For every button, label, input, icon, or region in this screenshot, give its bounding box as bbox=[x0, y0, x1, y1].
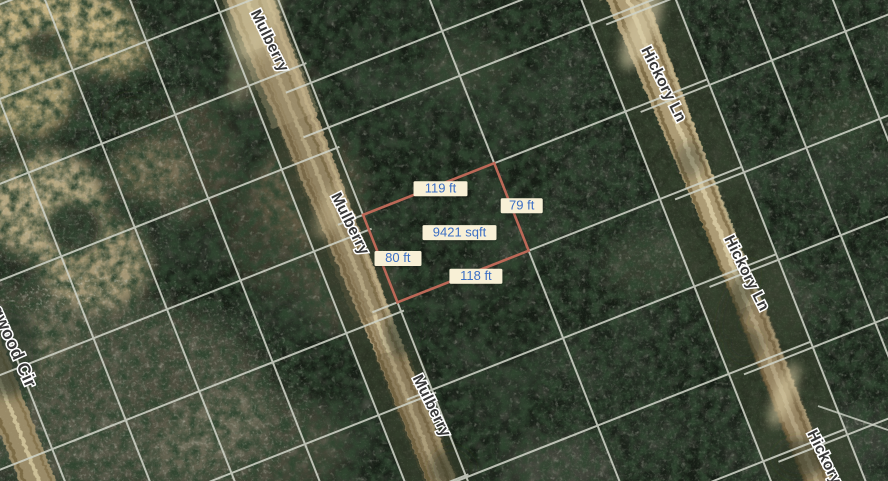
svg-text:79 ft: 79 ft bbox=[509, 198, 535, 213]
svg-text:9421 sqft: 9421 sqft bbox=[433, 224, 487, 239]
svg-text:80 ft: 80 ft bbox=[385, 250, 411, 265]
svg-text:119 ft: 119 ft bbox=[425, 180, 457, 195]
svg-text:118 ft: 118 ft bbox=[460, 268, 492, 283]
